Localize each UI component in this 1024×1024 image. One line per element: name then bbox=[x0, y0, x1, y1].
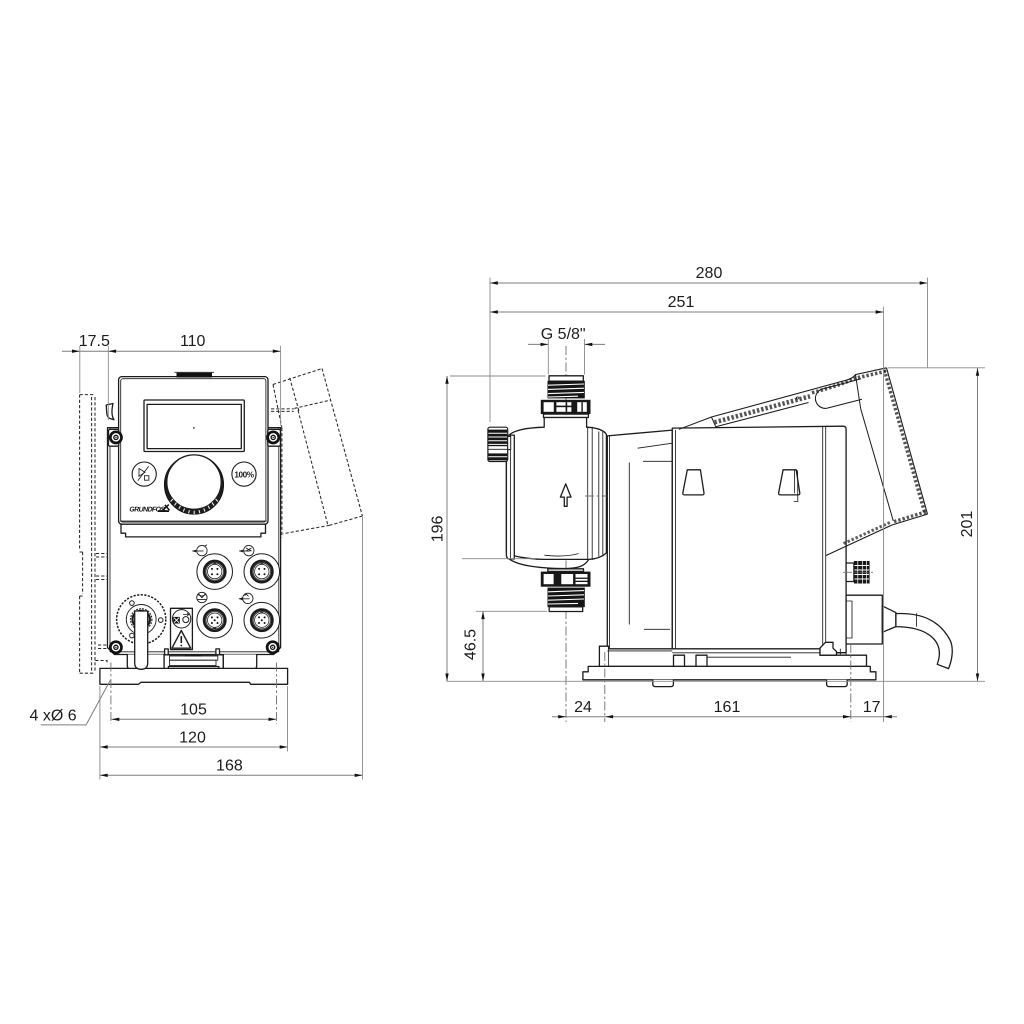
svg-text:120: 120 bbox=[179, 729, 206, 746]
svg-text:251: 251 bbox=[668, 294, 695, 311]
svg-text:17.5: 17.5 bbox=[79, 333, 110, 350]
svg-text:110: 110 bbox=[180, 333, 206, 350]
svg-text:280: 280 bbox=[696, 265, 723, 282]
svg-text:17: 17 bbox=[863, 699, 881, 716]
svg-text:196: 196 bbox=[429, 515, 446, 542]
svg-text:24: 24 bbox=[574, 699, 592, 716]
svg-text:GRUNDFOS: GRUNDFOS bbox=[129, 506, 166, 513]
svg-text:201: 201 bbox=[959, 511, 976, 538]
svg-text:161: 161 bbox=[714, 699, 741, 716]
svg-text:100%: 100% bbox=[234, 470, 254, 479]
svg-text:105: 105 bbox=[180, 702, 207, 719]
svg-text:4 xØ 6: 4 xØ 6 bbox=[30, 708, 77, 725]
svg-text:168: 168 bbox=[216, 758, 243, 775]
svg-text:46.5: 46.5 bbox=[463, 629, 480, 660]
svg-text:G 5/8": G 5/8" bbox=[541, 326, 586, 343]
